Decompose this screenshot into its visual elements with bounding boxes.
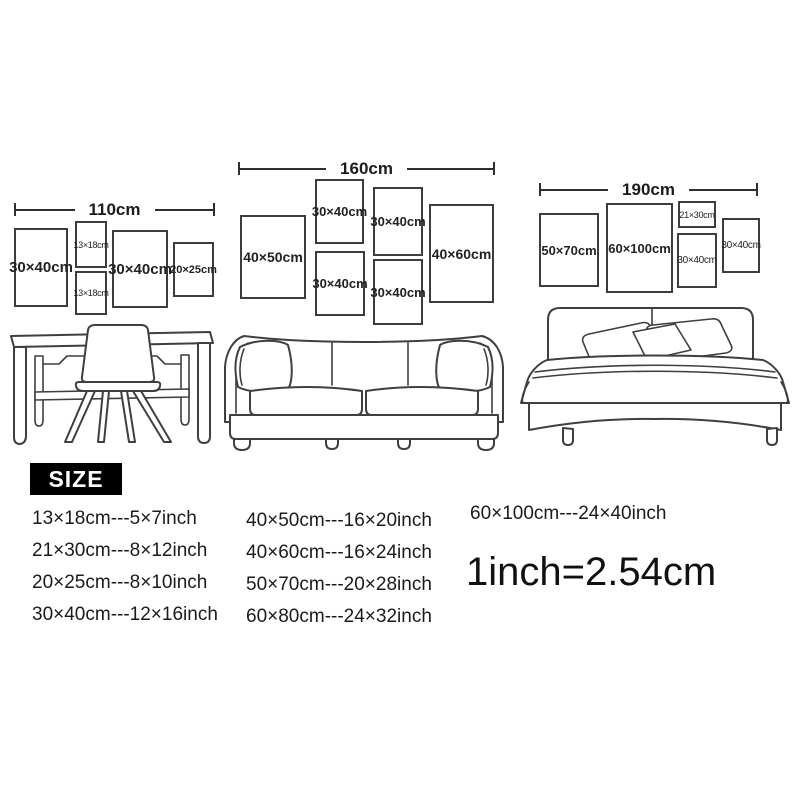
frame-30x40: 30×40cm xyxy=(677,233,717,288)
size-conversion-row: 50×70cm---20×28inch xyxy=(246,569,432,601)
size-conversion-row: 60×80cm---24×32inch xyxy=(246,601,432,633)
frame-30x40: 30×40cm xyxy=(373,259,423,325)
frame-30x40: 30×40cm xyxy=(373,187,423,256)
frame-21x30: 21×30cm xyxy=(678,201,716,228)
size-conversion-row: 13×18cm---5×7inch xyxy=(32,503,218,535)
inch-conversion-note: 1inch=2.54cm xyxy=(466,550,716,595)
frame-30x40: 30×40cm xyxy=(315,179,364,244)
size-conversion-row: 20×25cm---8×10inch xyxy=(32,567,218,599)
dimension-label: 190cm xyxy=(608,180,689,200)
dimension-line-desk: 110cm xyxy=(14,202,215,217)
dim-segment xyxy=(240,168,326,170)
size-column-1: 13×18cm---5×7inch 21×30cm---8×12inch 20×… xyxy=(32,503,218,631)
size-column-3: 60×100cm---24×40inch xyxy=(470,502,666,526)
frame-30x40: 30×40cm xyxy=(315,251,365,316)
dim-tick xyxy=(493,162,495,175)
dim-segment xyxy=(407,168,493,170)
frame-50x70: 50×70cm xyxy=(539,213,599,287)
dim-segment xyxy=(16,209,75,211)
frame-20x25: 20×25cm xyxy=(173,242,214,297)
bed-drawing xyxy=(521,308,789,445)
frame-13x18: 13×18cm xyxy=(75,221,107,268)
dimension-line-bed: 190cm xyxy=(539,182,758,197)
sofa-drawing xyxy=(225,336,503,450)
size-conversion-row: 30×40cm---12×16inch xyxy=(32,599,218,631)
frame-30x40: 30×40cm xyxy=(14,228,68,307)
size-badge: SIZE xyxy=(30,463,122,495)
dimension-label: 160cm xyxy=(326,159,407,179)
dimension-label: 110cm xyxy=(75,200,155,220)
dim-segment xyxy=(689,189,756,191)
sofa-illustration xyxy=(218,327,510,453)
dim-tick xyxy=(756,183,758,196)
size-conversion-row: 40×60cm---16×24inch xyxy=(246,537,432,569)
size-conversion-row: 21×30cm---8×12inch xyxy=(32,535,218,567)
bed-illustration xyxy=(515,302,795,450)
frame-40x50: 40×50cm xyxy=(240,215,306,299)
size-conversion-row: 40×50cm---16×20inch xyxy=(246,505,432,537)
frame-30x40: 30×40cm xyxy=(112,230,168,308)
dim-segment xyxy=(541,189,608,191)
frame-13x18: 13×18cm xyxy=(75,271,107,315)
frame-30x40: 30×40cm xyxy=(722,218,760,273)
size-guide-infographic: 110cm 30×40cm 13×18cm 13×18cm 30×40cm 20… xyxy=(0,0,800,800)
dim-segment xyxy=(155,209,214,211)
size-conversion-row: 60×100cm---24×40inch xyxy=(470,502,666,526)
size-column-2: 40×50cm---16×20inch 40×60cm---16×24inch … xyxy=(246,505,432,633)
desk-chair-illustration xyxy=(5,322,220,454)
frame-40x60: 40×60cm xyxy=(429,204,494,303)
frame-60x100: 60×100cm xyxy=(606,203,673,293)
dim-tick xyxy=(213,203,215,216)
dimension-line-sofa: 160cm xyxy=(238,161,495,176)
